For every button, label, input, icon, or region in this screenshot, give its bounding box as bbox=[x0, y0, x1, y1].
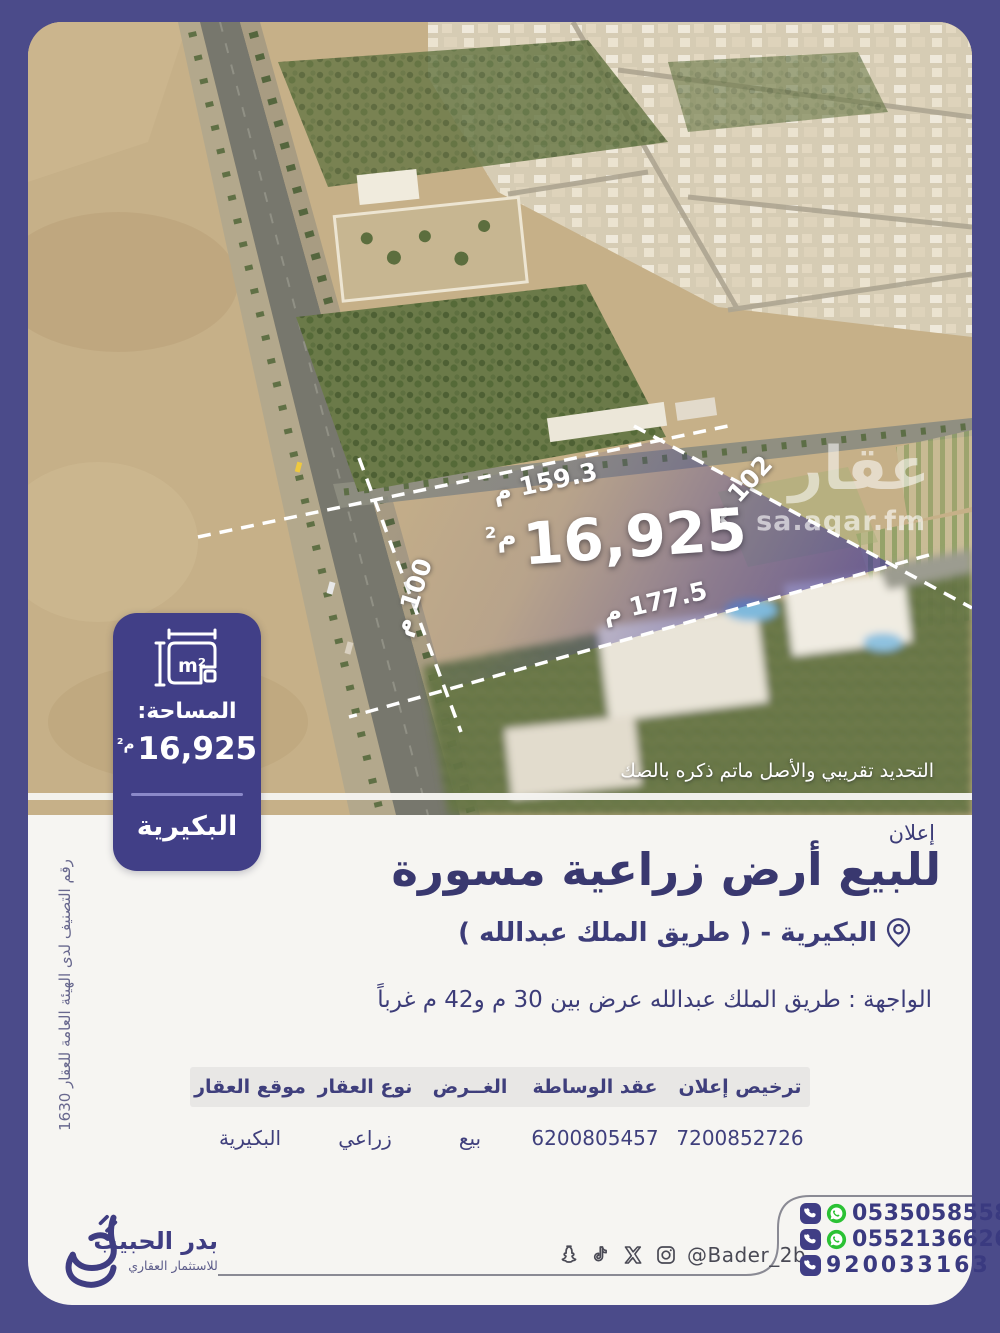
phone-icon bbox=[800, 1229, 821, 1250]
social-handle[interactable]: @Bader_2b bbox=[687, 1243, 806, 1267]
classification-note: رقم التصنيف لدى الهيئة العامة للعقار 163… bbox=[56, 859, 74, 1131]
tiktok-icon[interactable] bbox=[588, 1243, 612, 1267]
badge-city: البكيرية bbox=[113, 811, 261, 842]
kicker: إعلان bbox=[889, 821, 935, 845]
location-pin-icon bbox=[885, 917, 912, 948]
watermark-url: sa.aqar.fm bbox=[756, 506, 926, 537]
brand-block: بدر الحبيب للاستثمار العقاري bbox=[128, 1227, 218, 1273]
col-header-property-location: موقع العقار bbox=[190, 1076, 310, 1098]
whatsapp-icon bbox=[826, 1229, 847, 1250]
boundary-disclaimer: التحديد تقريبي والأصل ماتم ذكره بالصك bbox=[620, 760, 934, 782]
social-row: @Bader_2b bbox=[555, 1243, 806, 1267]
location-text: البكيرية - ( طريق الملك عبدالله ) bbox=[458, 918, 877, 948]
area-value-number: 16,925 bbox=[137, 731, 257, 767]
col-header-ad-license: ترخيص إعلان bbox=[670, 1076, 810, 1098]
announcement-section: إعلان للبيع أرض زراعية مسورة البكيرية - … bbox=[28, 815, 972, 1305]
license-table-header: ترخيص إعلان عقد الوساطة الغــرض نوع العق… bbox=[190, 1067, 810, 1107]
whatsapp-icon bbox=[826, 1203, 847, 1224]
license-table-values: 7200852726 6200805457 بيع زراعي البكيرية bbox=[190, 1121, 810, 1155]
area-icon-label: m² bbox=[178, 655, 206, 677]
phone-number[interactable]: 0535058558 bbox=[852, 1201, 1000, 1226]
value-property-location: البكيرية bbox=[190, 1126, 310, 1150]
phone-number[interactable]: 0552136626 bbox=[852, 1227, 1000, 1252]
area-value: 16,925م² bbox=[113, 731, 261, 767]
col-header-property-type: نوع العقار bbox=[310, 1076, 420, 1098]
phone-icon bbox=[800, 1255, 821, 1276]
brand-name: بدر الحبيب bbox=[128, 1227, 218, 1255]
area-m2-icon: m² bbox=[153, 627, 221, 689]
area-label: المساحة: bbox=[113, 699, 261, 724]
area-value-unit: م² bbox=[117, 735, 135, 753]
value-property-type: زراعي bbox=[310, 1126, 420, 1150]
area-badge: m² المساحة: 16,925م² البكيرية bbox=[113, 613, 261, 871]
col-header-brokerage-contract: عقد الوساطة bbox=[520, 1076, 670, 1098]
badge-divider bbox=[131, 793, 243, 796]
plot-area-unit: م² bbox=[484, 521, 518, 554]
value-brokerage-contract: 6200805457 bbox=[520, 1126, 670, 1150]
value-ad-license: 7200852726 bbox=[670, 1126, 810, 1150]
phone-row[interactable]: 0535058558 bbox=[800, 1201, 1000, 1226]
page-title: للبيع أرض زراعية مسورة bbox=[391, 843, 941, 896]
snapchat-icon[interactable] bbox=[555, 1243, 579, 1267]
phone-icon bbox=[800, 1203, 821, 1224]
frontage-text: الواجهة : طريق الملك عبدالله عرض بين 30 … bbox=[377, 987, 932, 1013]
x-icon[interactable] bbox=[621, 1243, 645, 1267]
phone-row[interactable]: 920033163 bbox=[800, 1253, 1000, 1278]
value-purpose: بيع bbox=[420, 1126, 520, 1150]
instagram-icon[interactable] bbox=[654, 1243, 678, 1267]
phone-row[interactable]: 0552136626 bbox=[800, 1227, 1000, 1252]
phone-list: 0535058558 0552136626 920033163 bbox=[800, 1201, 1000, 1278]
col-header-purpose: الغــرض bbox=[420, 1076, 520, 1098]
brand-tagline: للاستثمار العقاري bbox=[128, 1258, 218, 1273]
phone-number[interactable]: 920033163 bbox=[826, 1253, 991, 1278]
location-row: البكيرية - ( طريق الملك عبدالله ) bbox=[458, 917, 912, 948]
watermark-logo: عقار bbox=[789, 434, 930, 504]
